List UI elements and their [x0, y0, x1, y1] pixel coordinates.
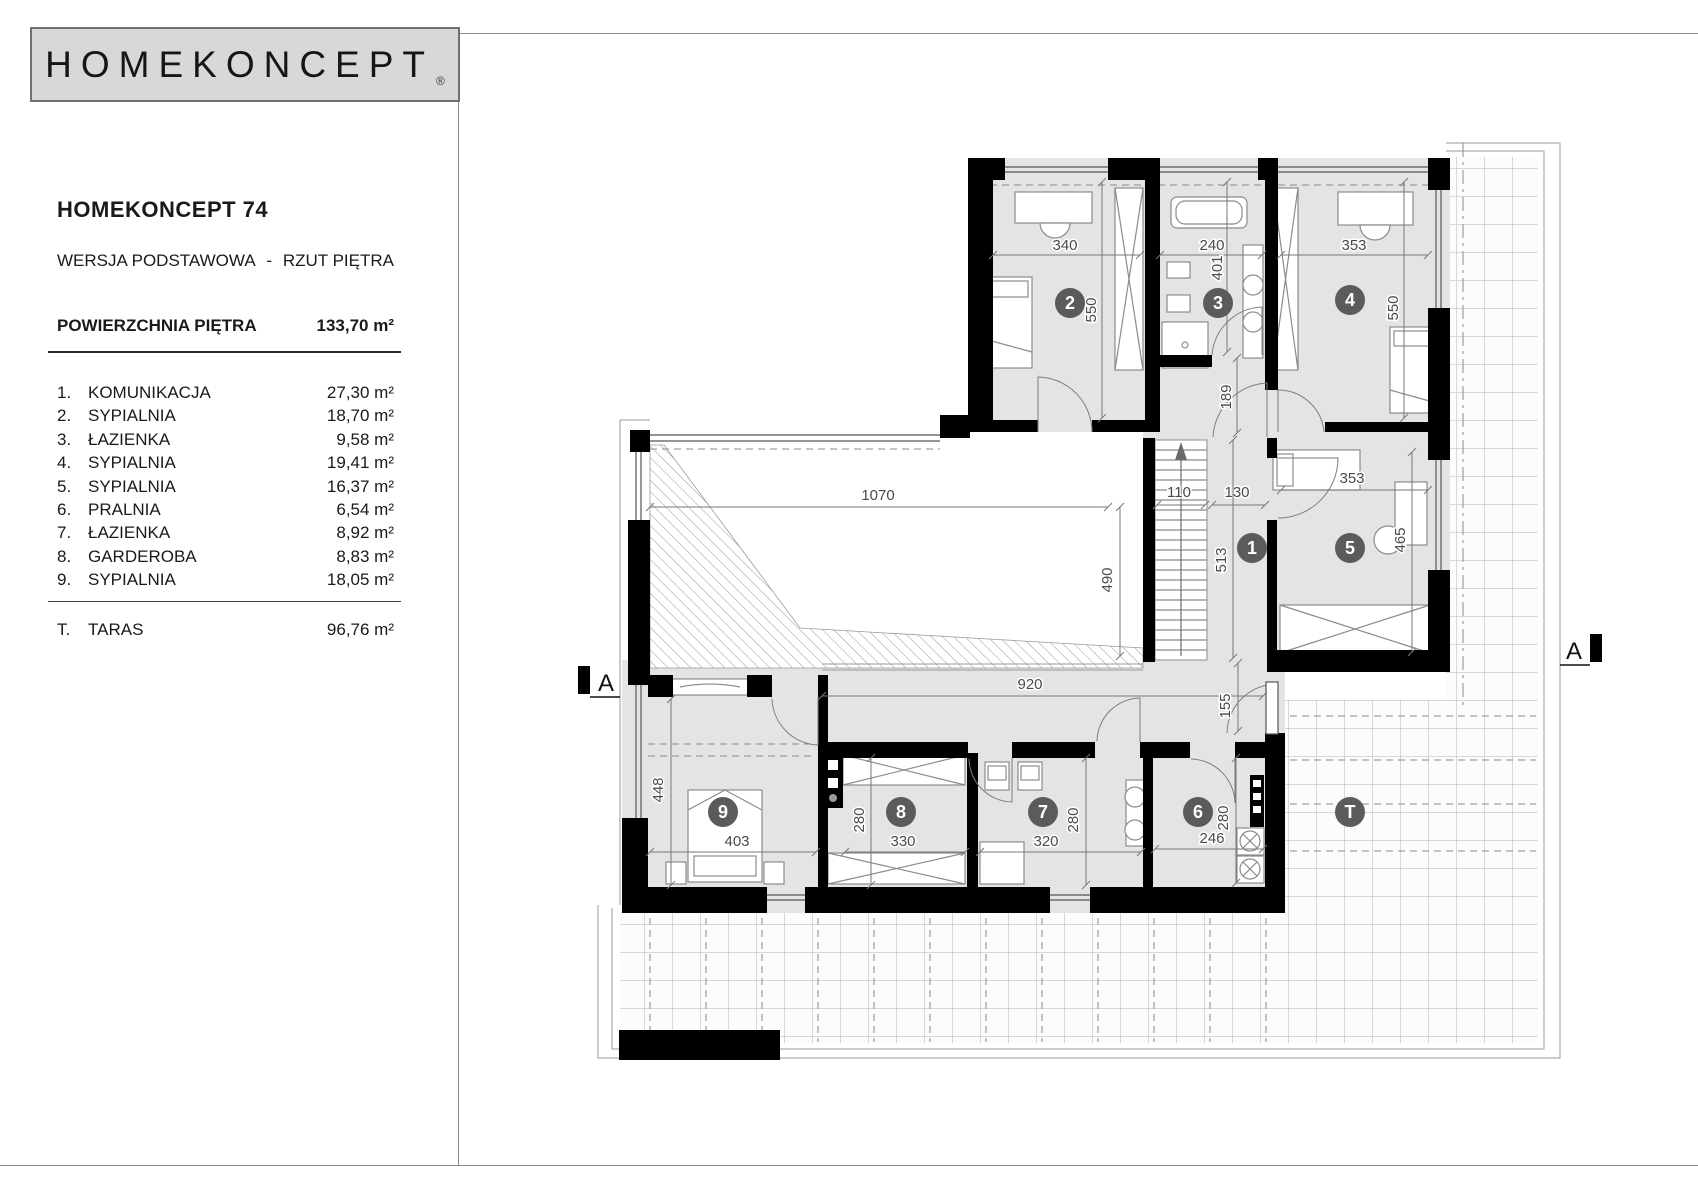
dimension-label: 280: [1215, 805, 1232, 830]
section-marker-left: A: [578, 666, 620, 697]
floorplan-sheet: HOMEKONCEPT ® HOMEKONCEPT 74 WERSJA PODS…: [0, 0, 1698, 1200]
dimension-label: 513: [1213, 547, 1230, 572]
room-number-text: T: [1345, 802, 1356, 822]
room-number-text: 1: [1247, 538, 1257, 558]
room-number-badge: 3: [1203, 288, 1233, 318]
dimension-label: 920: [1017, 676, 1042, 693]
room-number-text: 6: [1193, 802, 1203, 822]
dimension-label: 1070: [861, 487, 894, 504]
dimension-label: 189: [1218, 384, 1235, 409]
dimension-label: 550: [1385, 295, 1402, 320]
dimension: 490: [1099, 503, 1124, 660]
void-hatch: [650, 445, 1143, 668]
dimension-label: 340: [1052, 237, 1077, 254]
staircase: [1155, 440, 1207, 660]
dimension-label: 240: [1199, 237, 1224, 254]
room-number-badge: 8: [886, 797, 916, 827]
dimension-label: 401: [1209, 255, 1226, 280]
dimension-label: 403: [724, 833, 749, 850]
room-number-text: 7: [1038, 802, 1048, 822]
dimension-label: 353: [1339, 470, 1364, 487]
room-number-badge: T: [1335, 797, 1365, 827]
room-number-badge: 2: [1055, 288, 1085, 318]
room-number-badge: 5: [1335, 533, 1365, 563]
dimension-label: 246: [1199, 830, 1224, 847]
dimension: 1070: [646, 487, 1112, 511]
floorplan-drawing: 3402403534015505501891070490110130513353…: [0, 0, 1698, 1200]
room-number-badge: 4: [1335, 285, 1365, 315]
room-number-text: 5: [1345, 538, 1355, 558]
section-letter-right: A: [1566, 638, 1582, 665]
dimension-label: 320: [1033, 833, 1058, 850]
room-number-badge: 7: [1028, 797, 1058, 827]
room-number-badge: 6: [1183, 797, 1213, 827]
section-marker-right: A: [1560, 634, 1602, 665]
dimension-label: 280: [1065, 807, 1082, 832]
room-number-badge: 1: [1237, 533, 1267, 563]
dimension-label: 448: [650, 777, 667, 802]
room-number-text: 2: [1065, 293, 1075, 313]
room-number-text: 3: [1213, 293, 1223, 313]
room-number-text: 8: [896, 802, 906, 822]
dimension-label: 353: [1341, 237, 1366, 254]
dimension-label: 280: [851, 807, 868, 832]
dimension-label: 130: [1224, 484, 1249, 501]
dimension-label: 465: [1392, 527, 1409, 552]
room-number-text: 9: [718, 802, 728, 822]
section-letter-left: A: [598, 670, 614, 697]
room-number-text: 4: [1345, 290, 1355, 310]
room-number-badge: 9: [708, 797, 738, 827]
dimension-label: 330: [890, 833, 915, 850]
dimension-label: 490: [1099, 567, 1116, 592]
dimension-label: 550: [1083, 297, 1100, 322]
dimension-label: 110: [1167, 484, 1191, 501]
dimension-label: 155: [1217, 693, 1234, 718]
